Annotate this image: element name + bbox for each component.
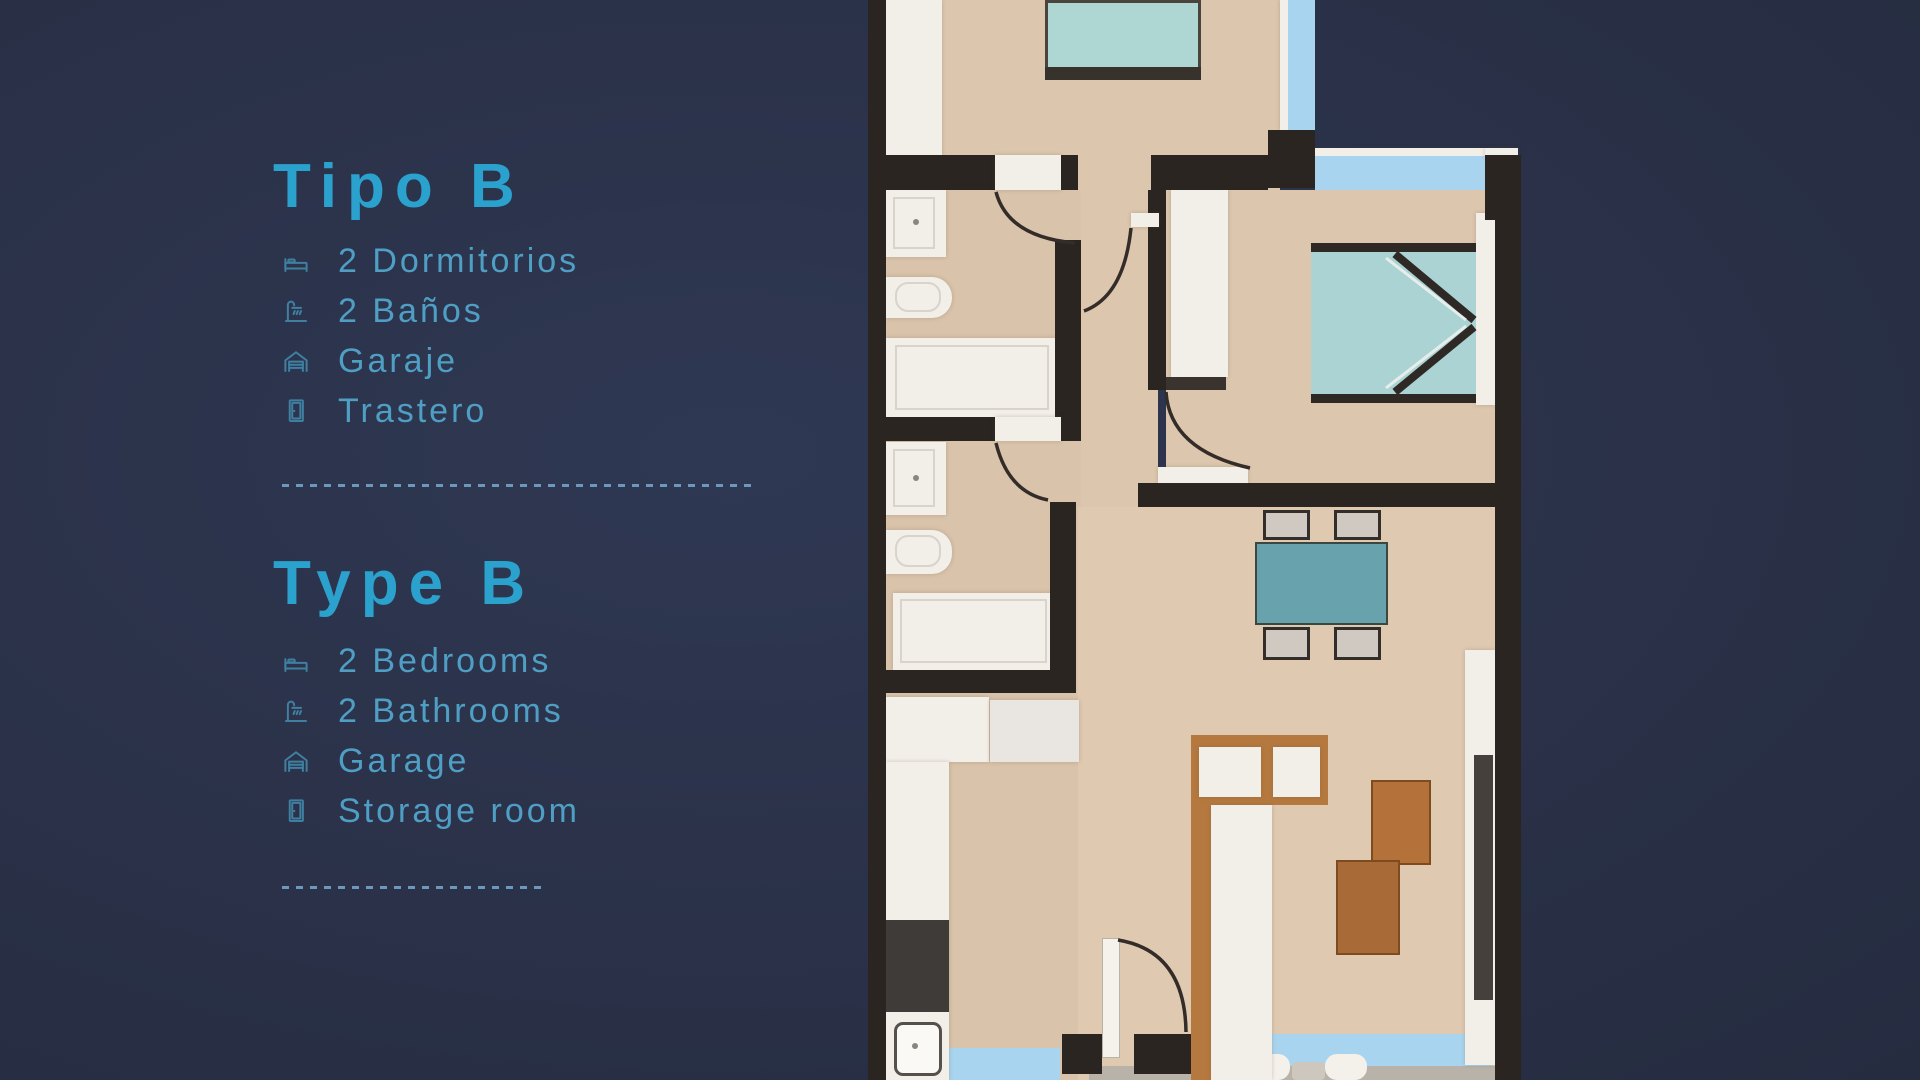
feature-label: Garaje [338,342,458,381]
dotted-divider [282,484,756,487]
door-icon [281,396,311,426]
feature-list-english: 2 Bedrooms 2 Bathrooms Garage Storage ro… [281,636,841,836]
feature-row: Storage room [281,786,841,836]
garage-icon [281,746,311,776]
floor-plan [868,0,1540,1080]
section-title-spanish: Tipo B [273,156,525,218]
feature-label: 2 Bedrooms [338,642,551,681]
feature-label: 2 Dormitorios [338,242,579,281]
feature-row: 2 Baños [281,286,841,336]
bed-icon [281,646,311,676]
feature-label: Garage [338,742,469,781]
feature-row: 2 Bedrooms [281,636,841,686]
bed-icon [281,246,311,276]
feature-row: Trastero [281,386,841,436]
feature-row: Garaje [281,336,841,386]
feature-label: 2 Bathrooms [338,692,564,731]
shower-icon [281,296,311,326]
feature-list-spanish: 2 Dormitorios 2 Baños Garaje Trastero [281,236,841,436]
garage-icon [281,346,311,376]
door-icon [281,796,311,826]
plan-detail-overlay [868,0,1540,1080]
info-panel: Tipo B 2 Dormitorios 2 Baños Garaje Tras… [273,0,853,1080]
feature-row: 2 Bathrooms [281,686,841,736]
feature-label: Storage room [338,792,580,831]
feature-row: Garage [281,736,841,786]
feature-label: Trastero [338,392,487,431]
feature-row: 2 Dormitorios [281,236,841,286]
dotted-divider [282,886,546,889]
feature-label: 2 Baños [338,292,484,331]
section-title-english: Type B [273,553,535,615]
shower-icon [281,696,311,726]
